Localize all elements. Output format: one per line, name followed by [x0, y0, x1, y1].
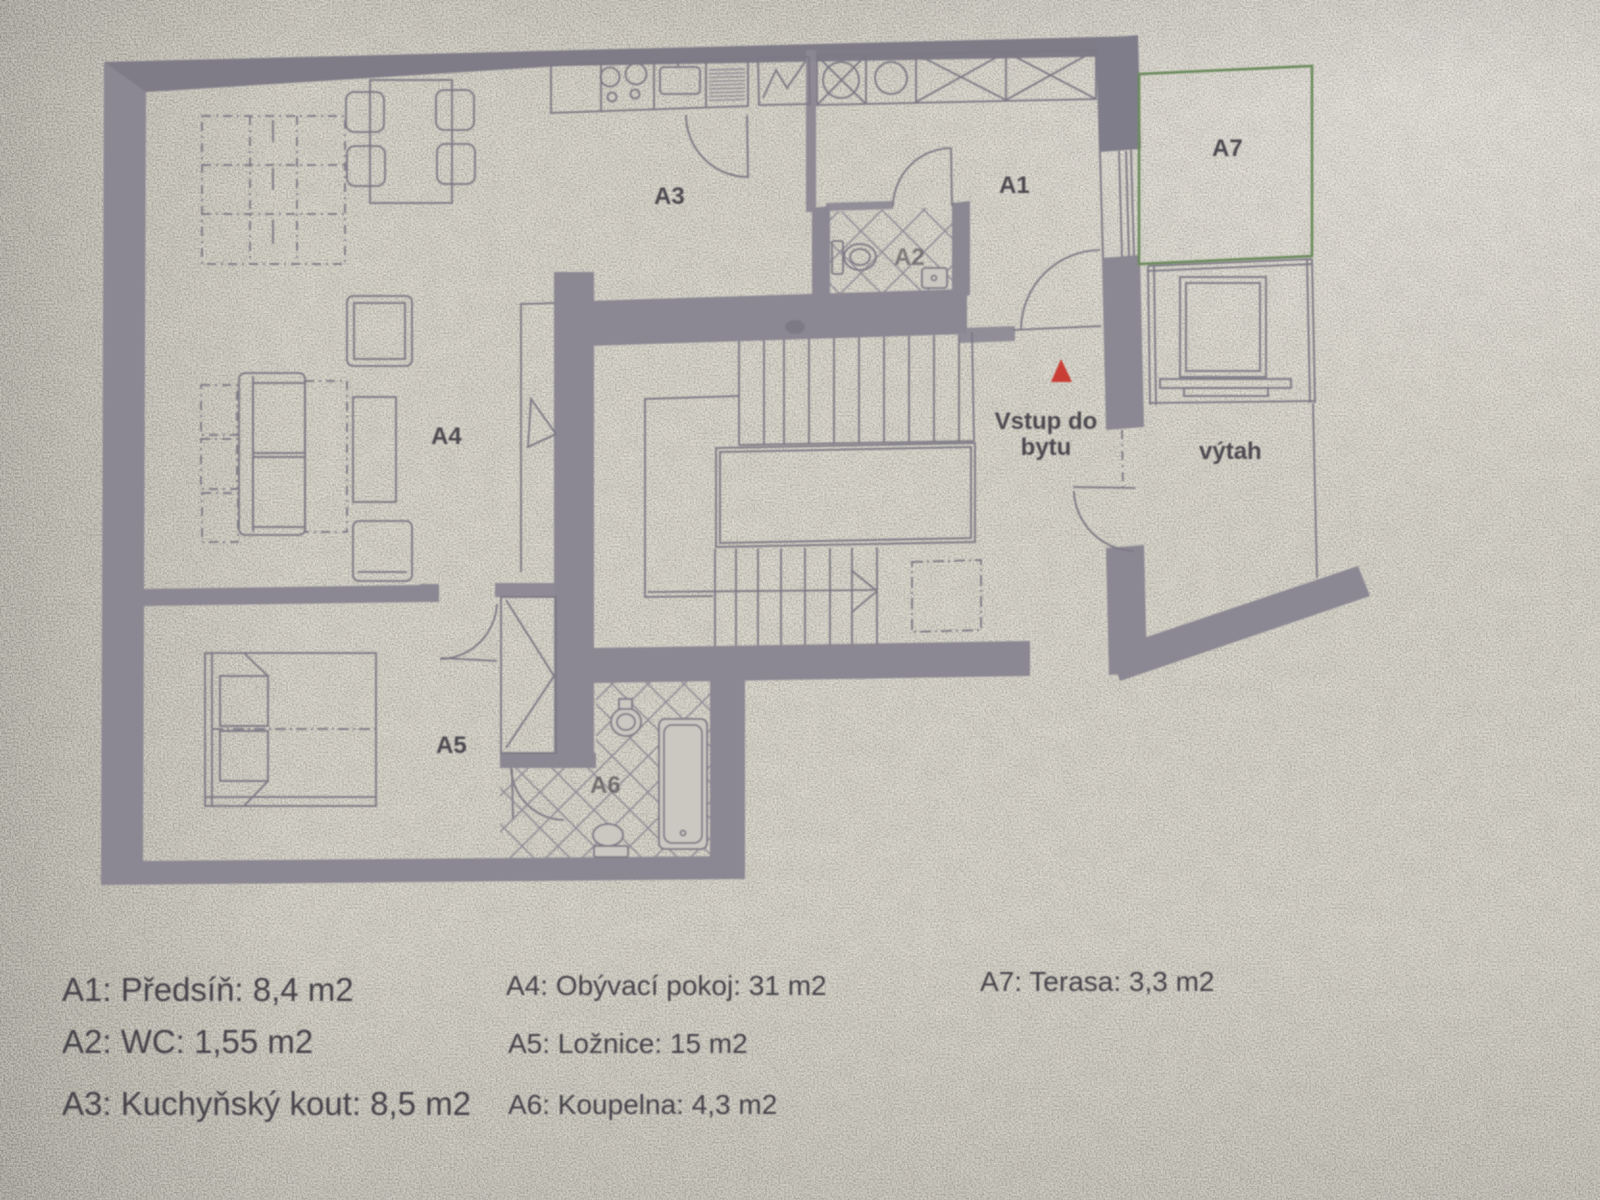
svg-text:výtah: výtah — [1199, 438, 1262, 465]
svg-text:A3: Kuchyňský kout: 8,5 m2: A3: Kuchyňský kout: 8,5 m2 — [62, 1085, 471, 1122]
svg-text:A7: A7 — [1212, 135, 1243, 162]
svg-text:A4: A4 — [431, 423, 462, 450]
svg-text:A1: Předsíň: 8,4 m2: A1: Předsíň: 8,4 m2 — [62, 971, 354, 1008]
svg-text:Vstup do: Vstup do — [995, 408, 1098, 435]
svg-text:A7: Terasa: 3,3 m2: A7: Terasa: 3,3 m2 — [980, 966, 1215, 997]
svg-text:A5: A5 — [436, 732, 467, 759]
svg-text:A5: Ložnice: 15 m2: A5: Ložnice: 15 m2 — [508, 1028, 748, 1059]
svg-text:A2: A2 — [894, 244, 925, 271]
svg-text:A6: A6 — [590, 772, 621, 799]
svg-text:A1: A1 — [999, 172, 1030, 199]
svg-text:A6: Koupelna: 4,3 m2: A6: Koupelna: 4,3 m2 — [508, 1089, 777, 1120]
svg-text:A2: WC: 1,55 m2: A2: WC: 1,55 m2 — [62, 1023, 313, 1060]
svg-text:A4: Obývací pokoj: 31 m2: A4: Obývací pokoj: 31 m2 — [506, 970, 827, 1001]
svg-text:bytu: bytu — [1021, 434, 1072, 461]
svg-text:A3: A3 — [654, 183, 685, 210]
